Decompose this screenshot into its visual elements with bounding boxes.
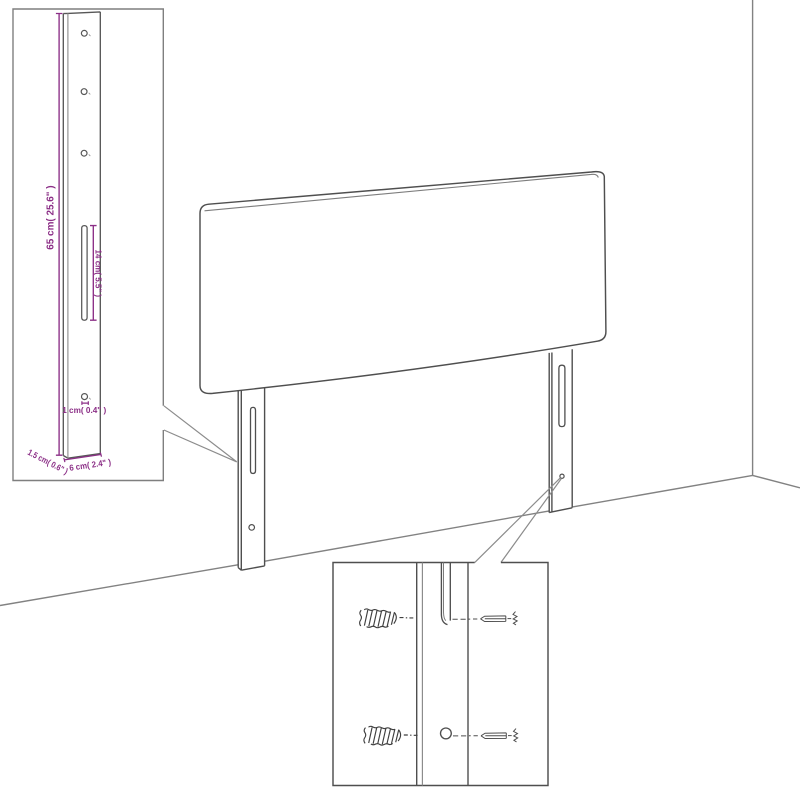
svg-text:65 cm( 25.6" ): 65 cm( 25.6" ): [46, 185, 57, 249]
svg-text:1 cm( 0.4" ): 1 cm( 0.4" ): [62, 405, 106, 415]
svg-text:14 cm( 5.5" ): 14 cm( 5.5" ): [94, 250, 104, 298]
